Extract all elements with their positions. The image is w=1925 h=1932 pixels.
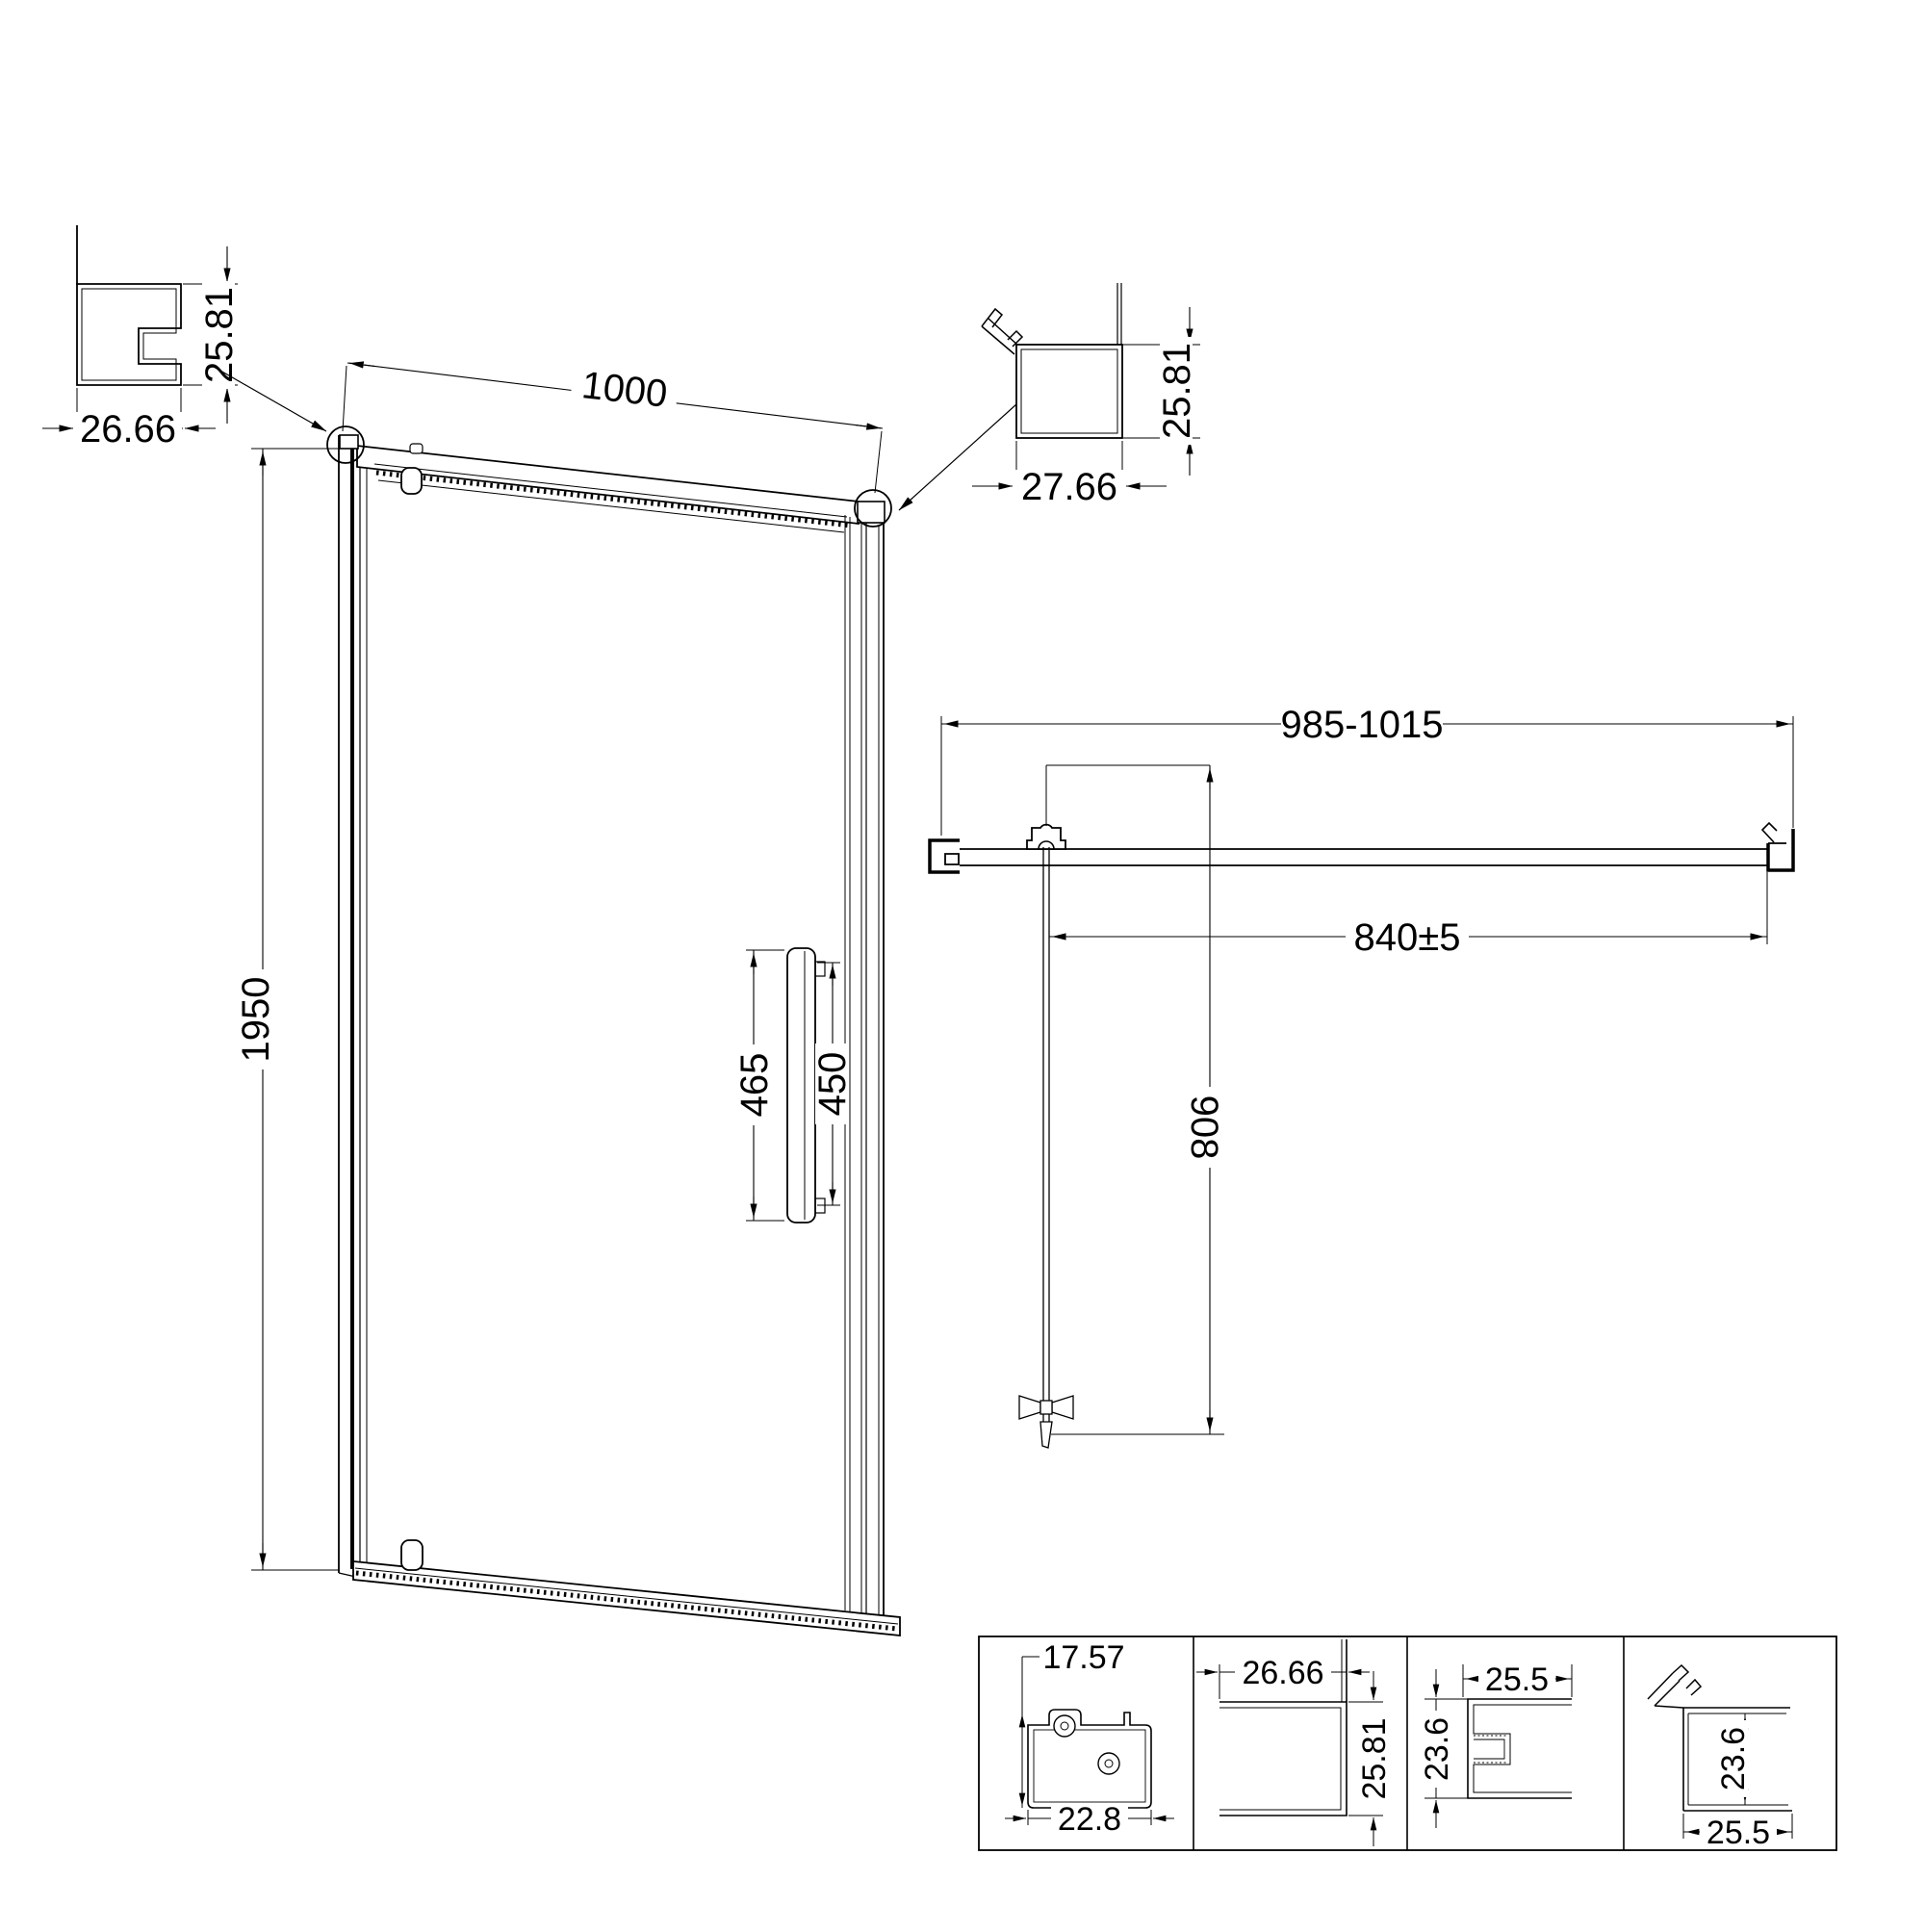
svg-text:25.81: 25.81 (1156, 343, 1198, 439)
svg-text:27.66: 27.66 (1021, 466, 1117, 508)
extension-line (1046, 765, 1210, 826)
section-rail-profile: 17.57 22.8 (1005, 1639, 1174, 1838)
svg-text:1000: 1000 (579, 364, 669, 416)
leader-left (214, 367, 326, 431)
profile-tongue (1474, 1739, 1504, 1759)
profile-outline (77, 284, 181, 385)
profile-hook-band (982, 319, 1018, 354)
dim-wall-section-width: 26.66 (1235, 1655, 1331, 1691)
extension-line (1022, 1657, 1039, 1713)
svg-text:23.6: 23.6 (1419, 1717, 1455, 1781)
bottom-hinge (401, 1540, 423, 1570)
plan-view: 985-1015 908 (930, 704, 1793, 1448)
dim-rail-height: 17.57 (1041, 1639, 1126, 1676)
wall-bracket-notch (945, 854, 959, 864)
svg-text:23.6: 23.6 (1715, 1727, 1752, 1790)
svg-text:985-1015: 985-1015 (1280, 704, 1443, 746)
svg-text:25.81: 25.81 (198, 287, 241, 383)
dim-rail-width: 22.8 (1051, 1801, 1128, 1838)
screw-boss (1098, 1753, 1119, 1774)
top-rail (357, 446, 859, 532)
svg-text:22.8: 22.8 (1058, 1801, 1121, 1838)
door-knob (1019, 1396, 1040, 1419)
section-channel-profile: 25.5 23.6 (1419, 1662, 1572, 1828)
dim-magnet-height: 23.6 (1715, 1720, 1752, 1797)
bottom-rail (353, 1561, 900, 1636)
profile-fin (1117, 283, 1121, 345)
profile-outline (1219, 1702, 1347, 1816)
door-knob-hub (1040, 1401, 1052, 1414)
dim-plan-open-depth: 908 (1183, 1087, 1225, 1168)
section-magnet-profile: 23.6 25.5 (1648, 1665, 1792, 1851)
corner-block (340, 435, 358, 449)
screw-boss (1054, 1715, 1075, 1737)
top-pivot-pin (410, 444, 423, 453)
glass-panel-plan (960, 849, 1768, 865)
door-knob (1052, 1396, 1073, 1419)
svg-text:25.5: 25.5 (1485, 1662, 1549, 1698)
profile-hook-band (1648, 1673, 1680, 1706)
dim-channel-height: 23.6 (1419, 1711, 1455, 1788)
open-door-plan (1043, 847, 1049, 1422)
profile-outline (1016, 345, 1122, 438)
svg-text:26.66: 26.66 (1242, 1655, 1323, 1691)
svg-text:26.66: 26.66 (80, 408, 176, 451)
svg-text:25.5: 25.5 (1707, 1815, 1770, 1851)
dim-wall-section-height: 25.81 (1356, 1711, 1393, 1807)
profile-hook (982, 309, 1002, 327)
magnet-bracket-hook (1762, 823, 1777, 842)
svg-text:17.57: 17.57 (1042, 1639, 1124, 1676)
dim-plan-overall-width: 985-1015 (1280, 704, 1443, 746)
section-wall-profile: 26.66 25.81 (1196, 1639, 1393, 1846)
corner-block (858, 502, 885, 523)
dim-arrow (349, 363, 374, 366)
strike-profile-detail: 25.81 27.66 (972, 283, 1200, 508)
dim-strike-profile-height: 25.81 (1156, 337, 1198, 445)
magnet-bracket (1768, 829, 1793, 870)
dim-handle-outer: 465 (733, 1044, 776, 1125)
dim-strike-profile-width: 27.66 (1014, 466, 1125, 508)
dim-handle-inner: 450 (811, 1043, 854, 1124)
svg-text:465: 465 (733, 1053, 776, 1118)
profile-hook (1673, 1665, 1688, 1681)
profile-inner-wall (1474, 1705, 1572, 1792)
dim-channel-width: 25.5 (1478, 1662, 1555, 1698)
svg-text:1950: 1950 (235, 977, 277, 1063)
profile-hook-tab (1686, 1680, 1701, 1695)
open-door-end-cap (1040, 1422, 1052, 1448)
dim-wall-profile-width: 26.66 (74, 408, 182, 451)
dim-front-height: 1950 (235, 969, 277, 1069)
wall-profile-detail: 25.81 26.66 (42, 225, 241, 451)
dim-plan-door-width: 840±5 (1346, 916, 1469, 959)
top-hinge (401, 468, 422, 494)
svg-text:908: 908 (1183, 1095, 1225, 1160)
dim-magnet-width: 25.5 (1700, 1815, 1777, 1851)
profile-inner-wall (1219, 1708, 1341, 1810)
leader-right (899, 404, 1016, 510)
svg-text:450: 450 (811, 1052, 854, 1117)
section-strip: 17.57 22.8 (979, 1636, 1836, 1851)
svg-text:25.81: 25.81 (1356, 1717, 1393, 1799)
technical-drawing: 25.81 26.66 25.81 27. (0, 0, 1925, 1932)
profile-outline (1468, 1699, 1572, 1798)
left-frame (339, 435, 367, 1578)
dim-front-width: 1000 (570, 363, 680, 417)
pivot-hinge (1027, 825, 1065, 849)
profile-outline (1028, 1710, 1151, 1808)
dim-wall-profile-height: 25.81 (198, 281, 241, 389)
dim-arrow (856, 425, 881, 428)
door-elevation: 465 450 1950 1000 (214, 363, 1016, 1636)
svg-text:840±5: 840±5 (1354, 916, 1461, 959)
